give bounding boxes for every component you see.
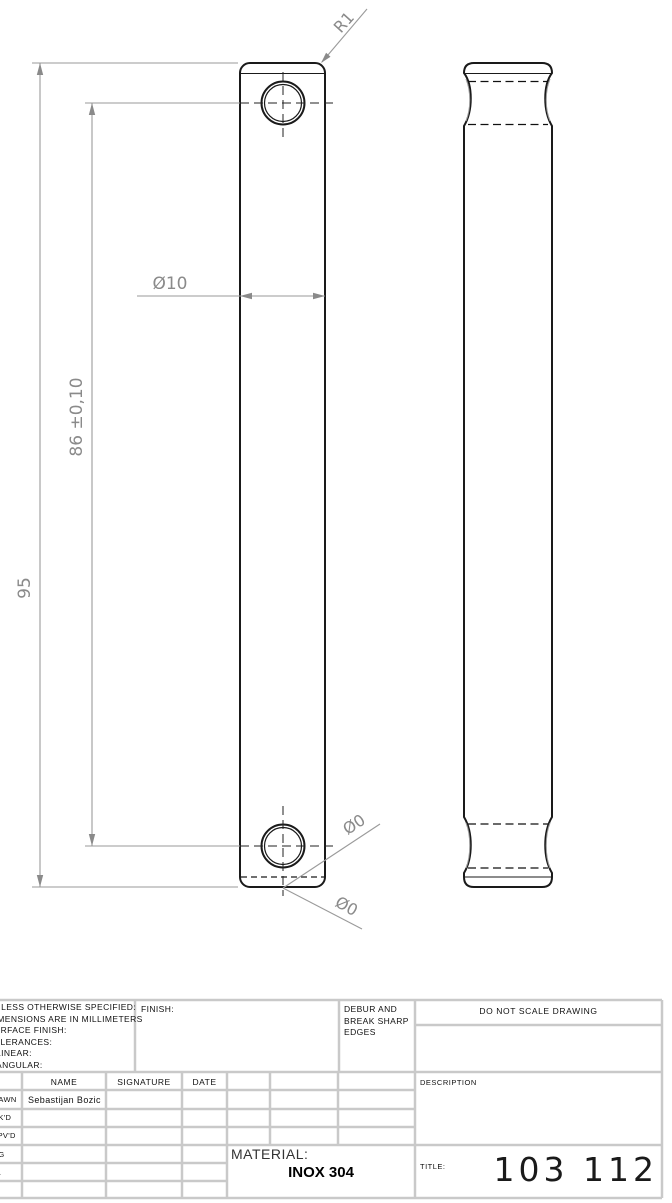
- tolerance-line: SURFACE FINISH:: [0, 1025, 143, 1037]
- dia-callout-upper: Ø0: [283, 810, 380, 888]
- dim-text-95: 95: [15, 577, 35, 599]
- dimension-95: 95: [15, 63, 238, 887]
- dim-text-86: 86 ±0,10: [67, 377, 87, 456]
- row-label-drawn: DRAWN: [0, 1095, 21, 1104]
- debur-note: DEBUR AND BREAK SHARP EDGES: [344, 1004, 409, 1039]
- debur-line: DEBUR AND: [344, 1004, 409, 1016]
- side-view: [464, 63, 552, 887]
- row-label-appvd: APPV'D: [0, 1131, 21, 1140]
- dimension-86: 86 ±0,10: [67, 103, 240, 846]
- drawing-number: 103 112: [478, 1150, 658, 1189]
- title-label: TITLE:: [420, 1162, 446, 1171]
- dim-text-r1: R1: [330, 8, 358, 37]
- description-label: DESCRIPTION: [420, 1077, 477, 1089]
- front-outline: [240, 63, 325, 887]
- finish-label: FINISH:: [141, 1004, 174, 1016]
- arrowhead-icon: [89, 834, 95, 846]
- drawing-sheet: 95 86 ±0,10 Ø10 R1 Ø0 Ø0: [0, 0, 672, 1203]
- leader-line-dia0-upper: [283, 824, 380, 888]
- dim-text-dia10: Ø10: [152, 274, 187, 294]
- tolerance-note: UNLESS OTHERWISE SPECIFIED: DIMENSIONS A…: [0, 1002, 143, 1071]
- dimension-dia10: Ø10: [137, 274, 325, 299]
- column-header-signature: SIGNATURE: [106, 1077, 182, 1087]
- column-header-date: DATE: [182, 1077, 227, 1087]
- dimension-r1: R1: [321, 8, 367, 63]
- arrowhead-icon: [313, 293, 325, 299]
- arrowhead-icon: [37, 63, 43, 75]
- tolerance-line: LINEAR:: [0, 1048, 143, 1060]
- dia-callout-lower: Ø0: [283, 888, 362, 929]
- debur-line: EDGES: [344, 1027, 409, 1039]
- row-label-qa: Q.A: [0, 1168, 21, 1177]
- drawn-name-value: Sebastijan Bozic: [28, 1095, 101, 1107]
- row-label-mfg: MFG: [0, 1150, 21, 1159]
- tolerance-line: DIMENSIONS ARE IN MILLIMETERS: [0, 1014, 143, 1026]
- tolerance-line: TOLERANCES:: [0, 1037, 143, 1049]
- row-label-chkd: CHK'D: [0, 1113, 21, 1122]
- material-label: MATERIAL:: [231, 1146, 308, 1162]
- do-not-scale-note: DO NOT SCALE DRAWING: [415, 1006, 662, 1016]
- side-outline: [464, 63, 552, 887]
- arrowhead-icon: [37, 875, 43, 887]
- arrowhead-icon: [89, 103, 95, 115]
- tolerance-line: ANGULAR:: [0, 1060, 143, 1072]
- debur-line: BREAK SHARP: [344, 1016, 409, 1028]
- column-header-name: NAME: [22, 1077, 106, 1087]
- tolerance-line: UNLESS OTHERWISE SPECIFIED:: [0, 1002, 143, 1014]
- front-view: [240, 63, 338, 896]
- arrowhead-icon: [240, 293, 252, 299]
- material-value: INOX 304: [227, 1164, 415, 1181]
